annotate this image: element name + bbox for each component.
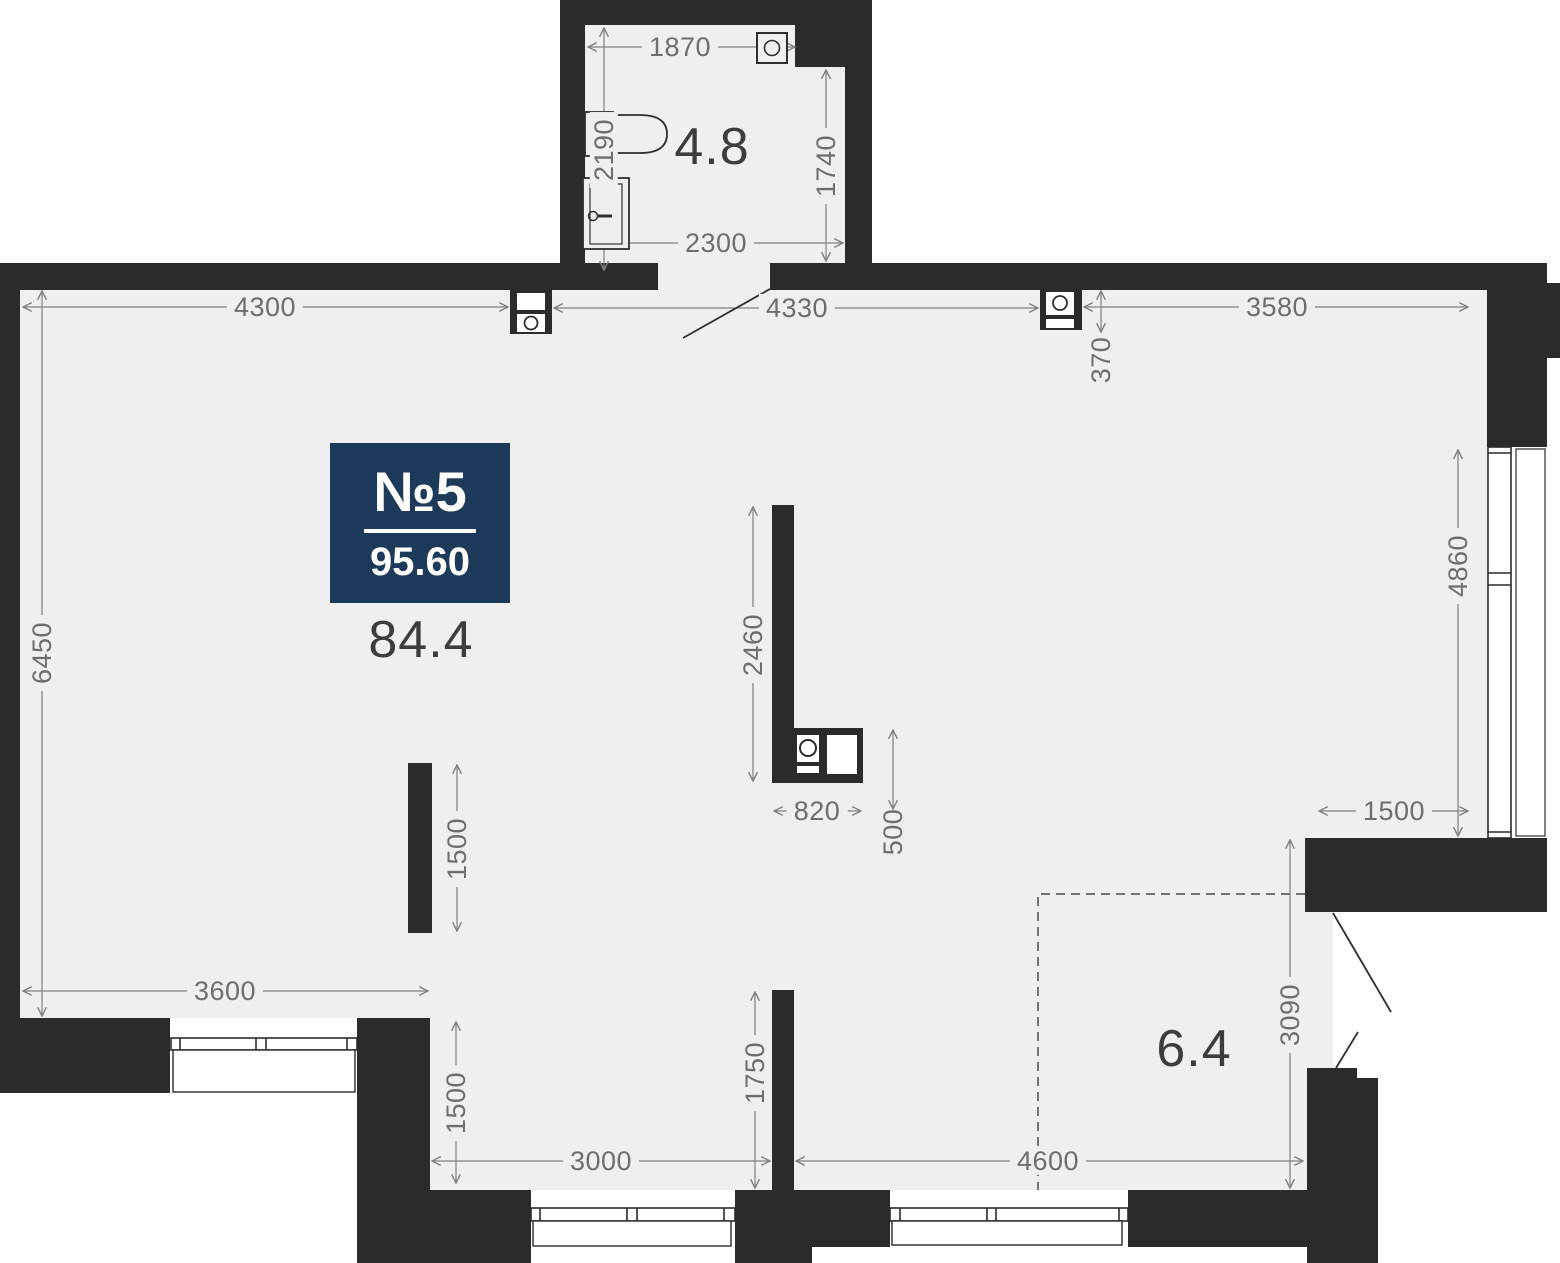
toilet-bowl-icon — [613, 115, 667, 153]
unit-badge: №5 95.60 — [330, 443, 510, 603]
ventilation-icon — [757, 33, 787, 63]
window-bottom-left — [171, 1019, 357, 1092]
window-bottom-right — [890, 1191, 1128, 1245]
dim-label-bath-top-width: 1870 — [642, 33, 718, 61]
badge-divider — [364, 529, 476, 533]
dim-label-kitchen-block-width: 820 — [787, 797, 848, 825]
dim-label-bottom-left-wall: 3600 — [187, 977, 263, 1005]
wall-segment — [357, 1018, 430, 1263]
wall-segment — [845, 55, 872, 290]
wall-segment — [0, 263, 658, 290]
wall-segment — [735, 1190, 890, 1247]
window-bottom-middle — [531, 1191, 735, 1246]
dim-label-top-wall-right: 3580 — [1239, 293, 1315, 321]
balcony-door-passage — [1307, 912, 1333, 1078]
unit-total-area: 95.60 — [370, 542, 470, 582]
balcony-door-swing-lower — [1336, 1032, 1358, 1068]
freestanding-wall — [408, 763, 432, 933]
dim-label-bottom-partition: 1750 — [741, 1035, 769, 1111]
floor-plan-drawing — [0, 0, 1560, 1263]
dim-label-kitchen-block-depth: 500 — [879, 802, 907, 863]
vent-icon-right — [1046, 292, 1074, 328]
dim-label-right-recess: 1500 — [1356, 797, 1432, 825]
wall-segment — [1128, 1190, 1378, 1247]
wall-segment — [0, 1018, 170, 1093]
dim-label-balcony-depth: 3090 — [1276, 977, 1304, 1053]
washing-machine-icon — [797, 735, 819, 773]
wall-segment — [1547, 283, 1560, 358]
dim-label-right-window: 4860 — [1444, 528, 1472, 604]
wall-segment — [430, 1190, 531, 1263]
kitchen-appliance-icon — [827, 735, 857, 774]
dim-label-bath-left-depth: 2190 — [590, 112, 618, 188]
wall-segment — [1305, 838, 1547, 912]
dim-label-top-wall-left: 4300 — [227, 293, 303, 321]
dim-label-bath-bottom-width: 2300 — [678, 229, 754, 257]
floor-plan: №5 95.60 84.4 4.8 6.4 1870 2190 1740 230… — [0, 0, 1560, 1263]
dim-label-top-wall-mid: 4330 — [759, 294, 835, 322]
window-right — [1488, 447, 1545, 838]
dim-label-bath-right-depth: 1740 — [812, 128, 840, 204]
wall-segment — [1307, 1068, 1357, 1078]
balcony-area-label: 6.4 — [1156, 1019, 1231, 1079]
dim-label-bottom-mid-wall: 3000 — [563, 1147, 639, 1175]
wall-segment — [560, 0, 585, 290]
wall-segment — [0, 263, 20, 1020]
bathroom-area-label: 4.8 — [674, 117, 749, 177]
dim-label-balcony-width: 4600 — [1010, 1147, 1086, 1175]
dim-label-bottom-left-recess: 1500 — [442, 1065, 470, 1141]
dim-label-kitchen-partition: 2460 — [739, 607, 767, 683]
dim-label-mid-wall-stub: 1500 — [443, 811, 471, 887]
dim-label-vent-offset: 370 — [1087, 330, 1115, 391]
bottom-partition-wall — [772, 990, 794, 1190]
wall-segment — [735, 1247, 812, 1263]
wall-segment — [1487, 263, 1547, 447]
unit-number: №5 — [373, 464, 467, 520]
dim-label-left-wall: 6450 — [28, 615, 56, 691]
wall-segment — [560, 0, 805, 25]
main-room-area-label: 84.4 — [368, 610, 473, 670]
wall-segment — [770, 263, 1487, 290]
balcony-door-swing-upper — [1333, 913, 1391, 1012]
